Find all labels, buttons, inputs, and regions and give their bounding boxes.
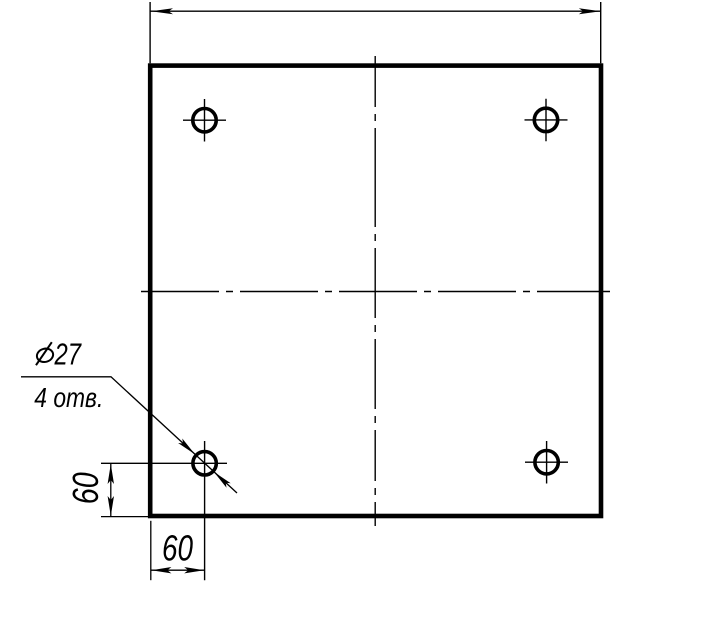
svg-text:60: 60	[65, 472, 106, 504]
svg-text:60: 60	[162, 528, 193, 569]
svg-text:27: 27	[54, 336, 83, 371]
svg-text:4 отв.: 4 отв.	[34, 382, 103, 413]
